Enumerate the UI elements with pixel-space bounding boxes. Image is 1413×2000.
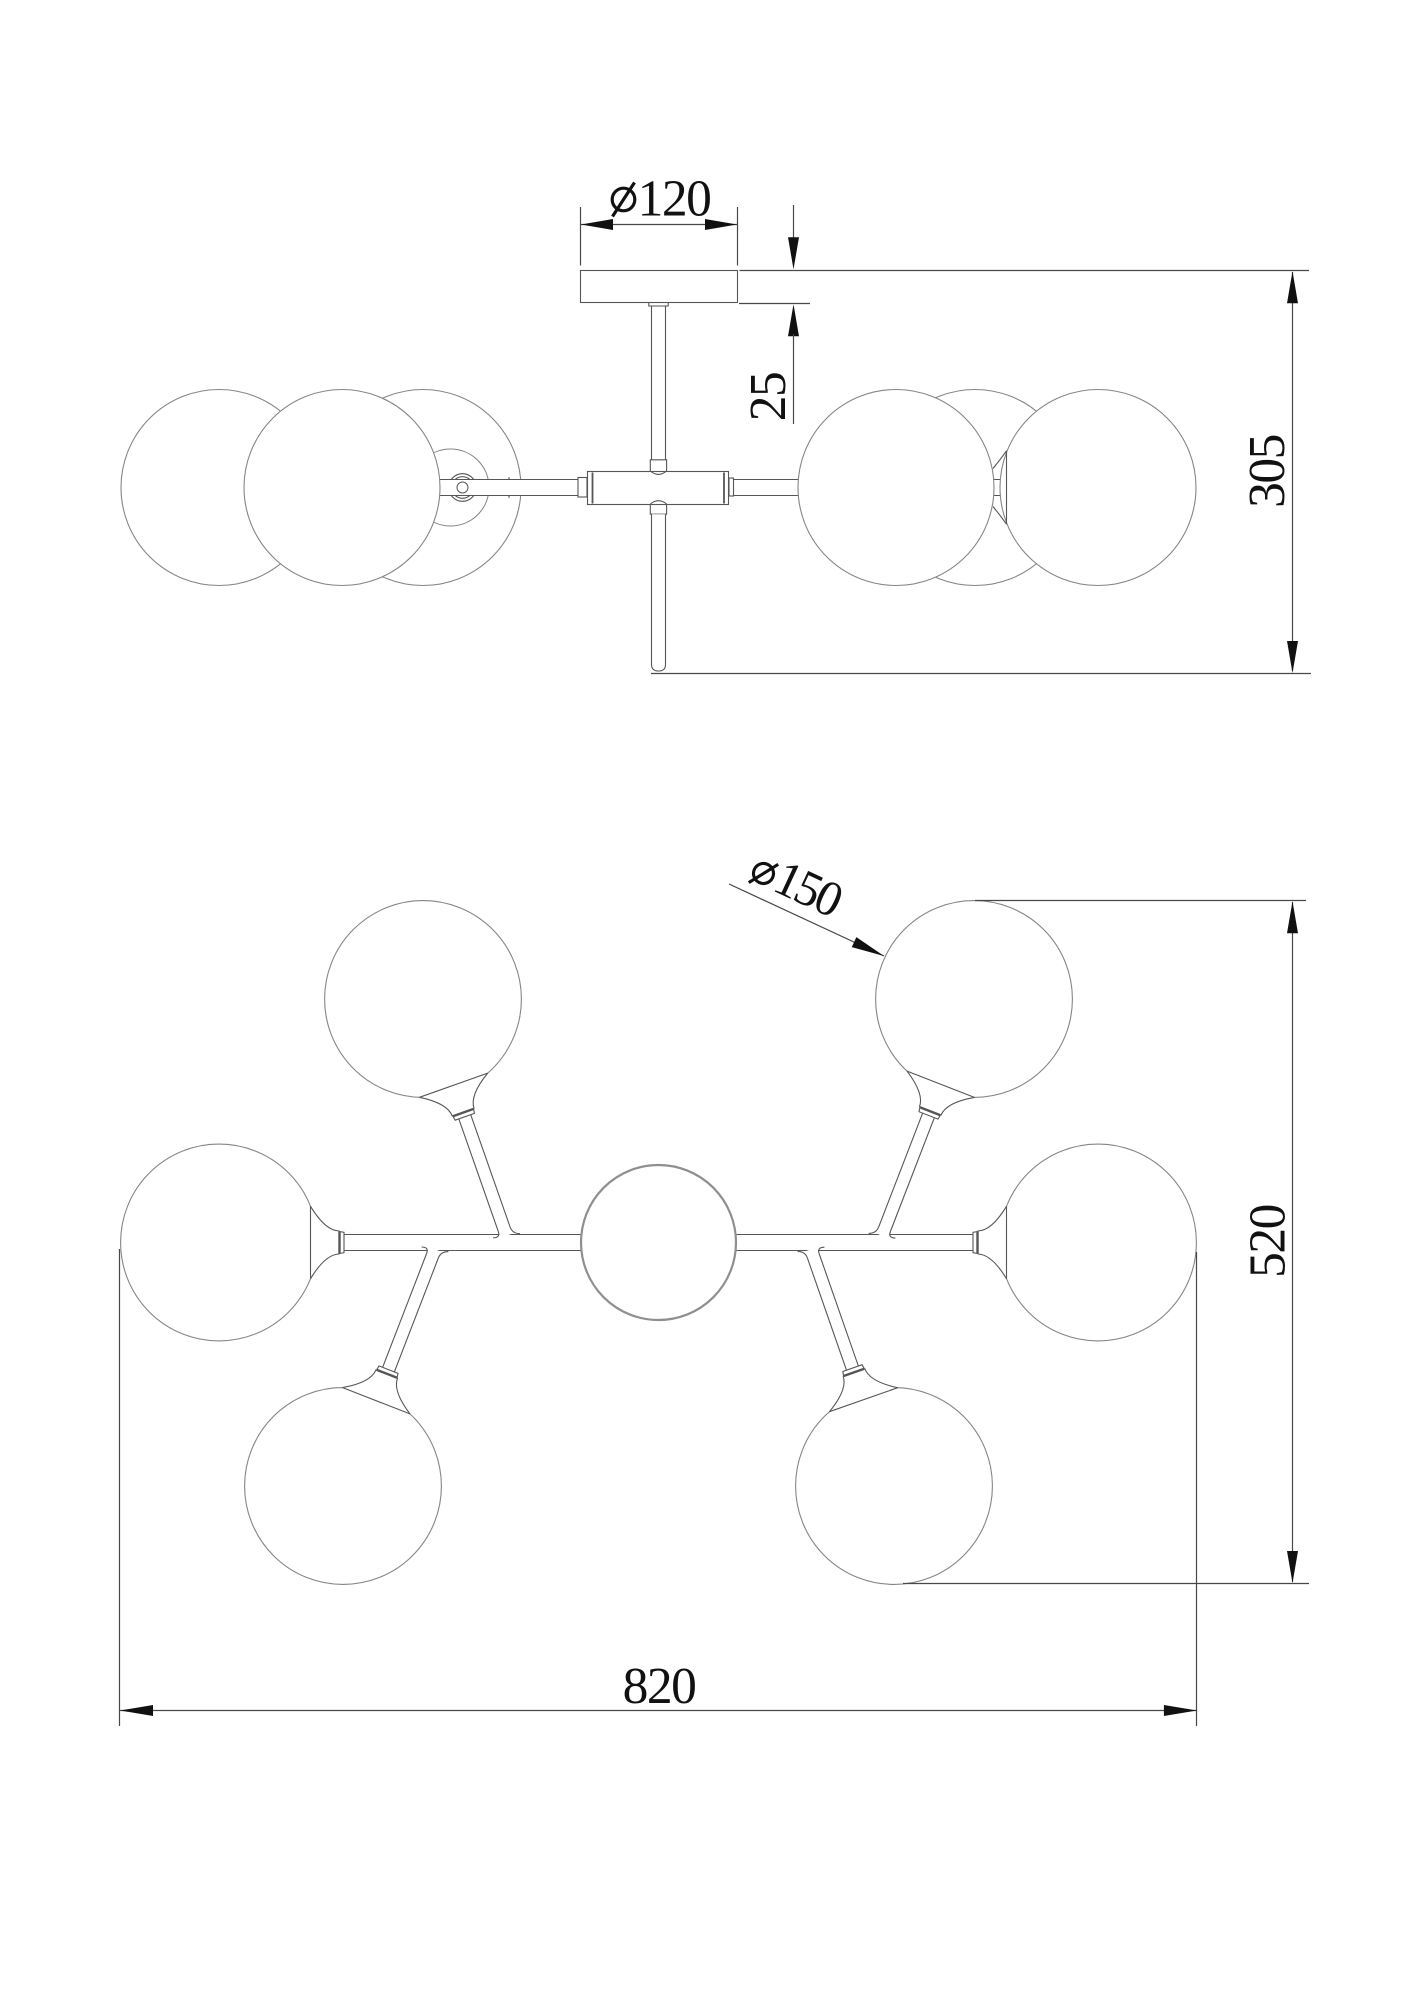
svg-text:120: 120 [638, 171, 711, 228]
svg-text:305: 305 [1239, 435, 1296, 508]
svg-text:25: 25 [740, 373, 797, 422]
svg-text:520: 520 [1240, 1205, 1297, 1278]
svg-text:820: 820 [623, 1658, 696, 1715]
